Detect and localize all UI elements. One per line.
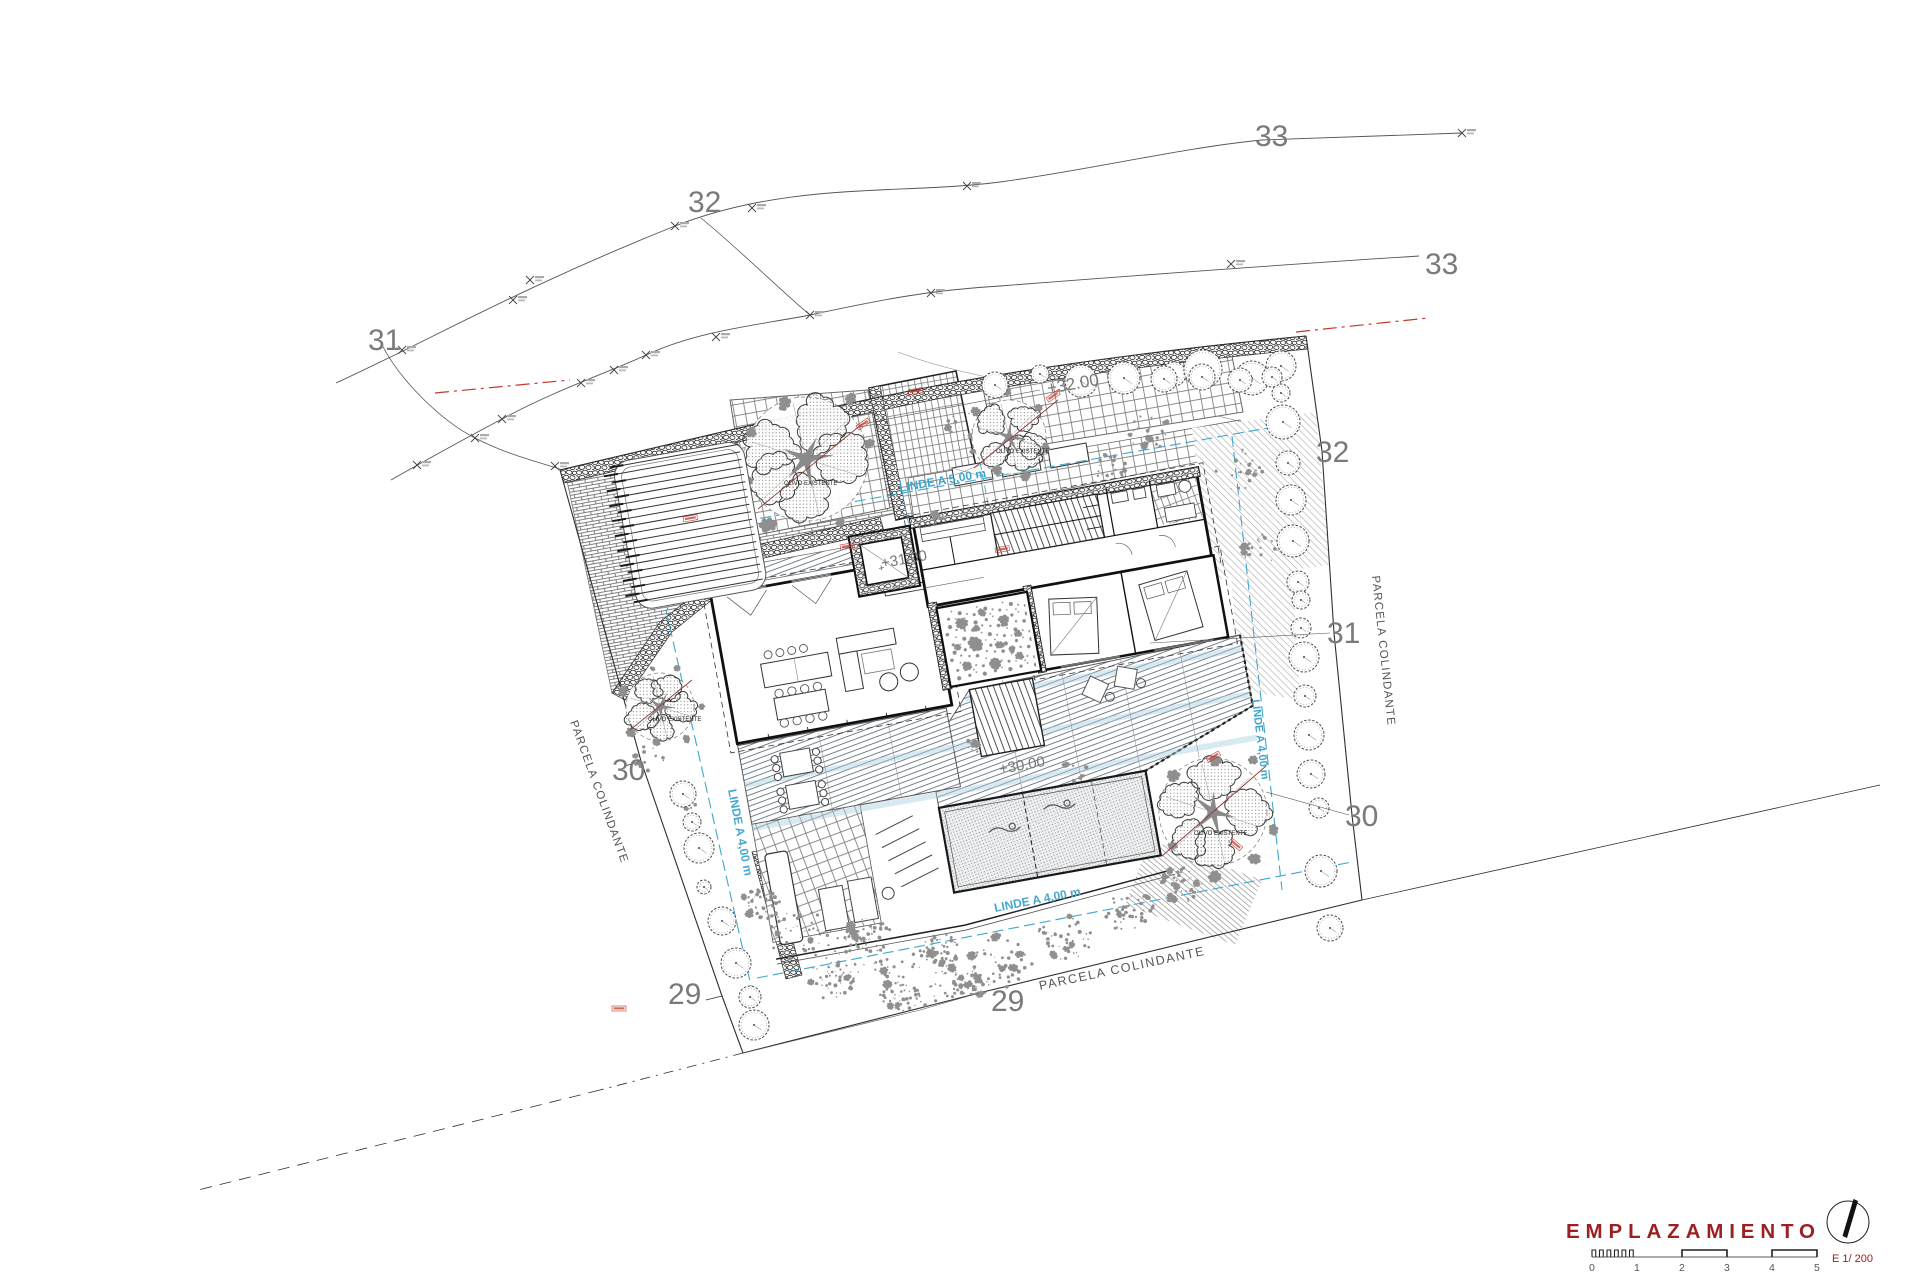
svg-text:32: 32 xyxy=(1316,436,1349,469)
svg-text:E 1/ 200: E 1/ 200 xyxy=(1832,1253,1873,1265)
svg-text:OLIVO EXISTENTE: OLIVO EXISTENTE xyxy=(1194,831,1247,837)
svg-text:29: 29 xyxy=(668,978,701,1011)
svg-text:1: 1 xyxy=(1634,1262,1640,1274)
svg-text:30: 30 xyxy=(1345,800,1378,833)
svg-text:OLIVO EXISTENTE: OLIVO EXISTENTE xyxy=(784,481,837,487)
svg-text:OLIVO EXISTENTE: OLIVO EXISTENTE xyxy=(648,717,701,723)
svg-text:2: 2 xyxy=(1679,1262,1685,1274)
svg-text:30: 30 xyxy=(612,754,645,787)
svg-text:33: 33 xyxy=(1255,120,1288,153)
svg-text:33: 33 xyxy=(1425,248,1458,281)
svg-text:OLIVO EXISTENTE: OLIVO EXISTENTE xyxy=(996,449,1049,455)
svg-text:31: 31 xyxy=(1327,617,1360,650)
svg-text:0: 0 xyxy=(1589,1262,1595,1274)
svg-text:31: 31 xyxy=(368,324,401,357)
svg-text:29: 29 xyxy=(991,985,1024,1018)
svg-text:32: 32 xyxy=(688,186,721,219)
svg-text:3: 3 xyxy=(1724,1262,1730,1274)
svg-text:4: 4 xyxy=(1769,1262,1775,1274)
svg-text:5: 5 xyxy=(1814,1262,1820,1274)
